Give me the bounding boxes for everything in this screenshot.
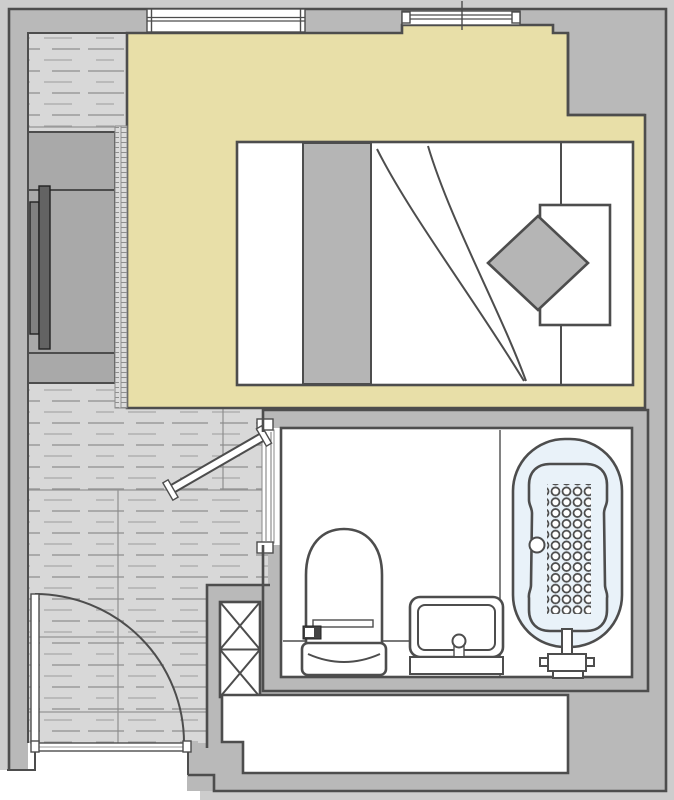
toilet-control-panel (303, 626, 321, 639)
double-bed (237, 142, 633, 385)
bathroom (281, 428, 632, 678)
duvet-runner (303, 143, 371, 384)
wardrobe-sliding-panel-rear (30, 202, 39, 334)
entry-door-leaf (31, 594, 39, 743)
door-track-strip (115, 126, 127, 408)
window-top-left (147, 9, 305, 32)
vanity-sink (410, 597, 503, 674)
sink-faucet (453, 635, 466, 648)
floor-plan (0, 0, 674, 800)
tub-drain (530, 538, 545, 553)
wardrobe-sliding-panel-front (39, 186, 50, 349)
toilet (302, 529, 386, 675)
floor-plan-svg (0, 0, 674, 800)
wardrobe (28, 132, 115, 383)
tub-antislip-dots (547, 484, 591, 614)
toilet-seat-bar (313, 620, 373, 627)
rear-alcove (222, 695, 568, 773)
